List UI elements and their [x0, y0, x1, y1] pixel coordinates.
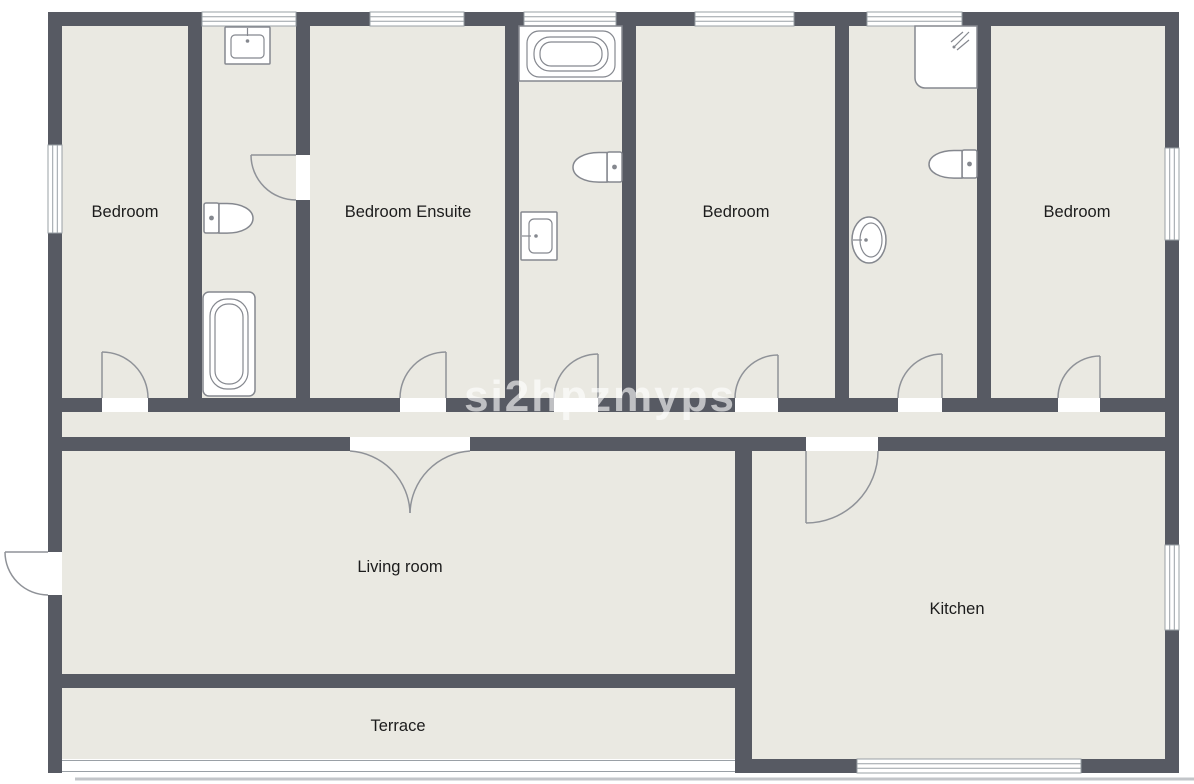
window-icon — [1165, 148, 1179, 240]
window-icon — [48, 145, 62, 233]
wall-corridor-bottom — [48, 437, 1179, 451]
wall-bathroom1-ensuite — [296, 26, 310, 398]
window-icon — [695, 12, 794, 26]
window-icon — [524, 12, 616, 26]
toilet-icon — [204, 203, 253, 233]
wall-exterior-left — [48, 12, 62, 773]
sink-icon — [225, 27, 270, 64]
room-label-bedroom-1: Bedroom — [92, 203, 159, 221]
room-label-bedroom-ensuite: Bedroom Ensuite — [345, 203, 472, 221]
window-icon — [202, 12, 296, 26]
wall-bathroom2-bedroom2 — [622, 26, 636, 398]
room-label-kitchen: Kitchen — [929, 600, 984, 618]
room-label-terrace: Terrace — [370, 717, 425, 735]
sink-icon — [521, 212, 557, 260]
bathtub-icon — [519, 26, 622, 81]
shower-icon — [915, 26, 977, 88]
room-label-living-room: Living room — [357, 558, 442, 576]
window-icon — [867, 12, 962, 26]
wall-bathroom3-bedroom3 — [977, 26, 991, 398]
wall-exterior-right — [1165, 12, 1179, 773]
room-label-bedroom-3: Bedroom — [1044, 203, 1111, 221]
wall-bedroom2-bathroom3 — [835, 26, 849, 398]
sink-icon — [852, 217, 886, 263]
wall-living-terrace — [62, 674, 735, 688]
toilet-icon — [573, 152, 622, 182]
window-icon — [857, 759, 1081, 773]
terrace-railing — [62, 759, 735, 773]
bathtub-icon — [203, 292, 255, 396]
door-arc-icon-living-exterior — [5, 552, 48, 595]
window-icon — [370, 12, 464, 26]
room-label-bedroom-2: Bedroom — [703, 203, 770, 221]
toilet-icon — [929, 150, 977, 178]
watermark-text: si2hpzmyps — [464, 372, 736, 421]
wall-ensuite-bathroom2 — [505, 26, 519, 398]
wall-living-kitchen — [735, 451, 752, 773]
wall-bedroom1-bathroom1 — [188, 26, 202, 398]
window-icon — [1165, 545, 1179, 630]
floorplan-canvas: Bedroom Bedroom Ensuite Bedroom Bedroom … — [0, 0, 1194, 784]
